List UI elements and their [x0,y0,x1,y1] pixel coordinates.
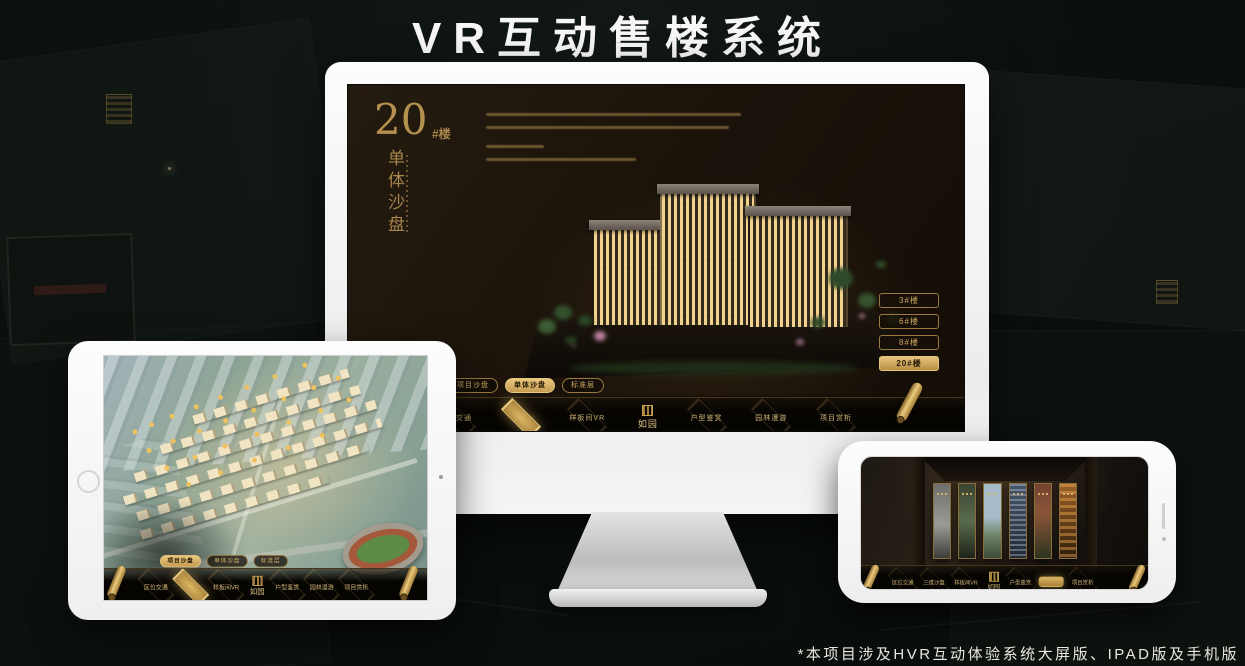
seal-icon [989,572,999,582]
gallery-panel[interactable] [1034,483,1052,559]
menu-item-project-review[interactable]: 项目赏析 [343,580,371,593]
intro-text-line [486,145,544,148]
menu-item-project-review[interactable]: 项目赏析 [816,410,856,426]
building-wing-right [748,215,848,327]
menu-item-unit-appreciation[interactable]: 户型鉴赏 [687,410,727,426]
scroll-brush-icon[interactable] [862,564,881,590]
tab-standard-floor[interactable]: 标准层 [562,378,604,393]
scroll-brush-icon[interactable] [398,565,419,600]
building-tower [660,193,756,325]
menu-item-unit-appreciation[interactable]: 户型鉴赏 [273,580,301,593]
menu-item-unit-appreciation[interactable]: 户型鉴赏 [1009,576,1032,588]
gallery-panel[interactable] [1059,483,1077,559]
building-number: 20 [374,99,427,141]
menu-item-showroom-vr[interactable]: 样板间VR [565,410,609,426]
tab-project-sandtable[interactable]: 项目沙盘 [160,555,201,567]
building-wing-left [592,229,668,325]
home-button[interactable] [77,470,100,493]
gallery-panel[interactable] [958,483,976,559]
section-subtitle-decor [406,155,408,235]
intro-text-line [486,113,741,116]
poster-canvas: VR互动售楼系统 20 #楼 单体沙盘 [0,0,1245,666]
menu-item-location-traffic[interactable]: 区位交通 [891,576,914,588]
speaker-icon [1162,503,1165,529]
menu-item-3d-sandtable[interactable]: 三维沙盘 [922,576,945,588]
menu-item-showroom-vr[interactable]: 样板间VR [953,576,979,588]
camera-icon [439,475,443,479]
phone-bottom-menu: 区位交通 三维沙盘 样板间VR 如园 户型鉴赏 园林漫游 项目赏析 [861,565,1148,590]
intro-text-line [486,126,729,129]
gallery-panel[interactable] [933,483,951,559]
floor-button-column: 3#楼 6#楼 8#楼 20#楼 [879,293,939,371]
seal-icon [642,405,653,416]
map-star-icon [168,167,171,170]
menu-item-garden-roam[interactable]: 园林漫游 [1040,576,1063,588]
model-trees-pink [594,331,606,341]
floor-button-3[interactable]: 3#楼 [879,293,939,308]
scroll-brush-icon[interactable] [1128,564,1147,590]
menu-item-garden-roam[interactable]: 园林漫游 [308,580,336,593]
menu-item-3d-sandtable[interactable]: 三维沙盘 [501,410,541,426]
background-photo-tile [972,70,1245,331]
tablet-device: 项目沙盘 单体沙盘 标准层 区位交通 三维沙盘 样板间VR 如园 户型鉴赏 园林… [68,341,456,620]
building-3d-model[interactable] [498,155,928,395]
gallery-panel[interactable] [1009,483,1027,559]
menu-item-project-review[interactable]: 项目赏析 [1071,576,1094,588]
building-badge-dots [132,429,138,435]
scroll-brush-icon[interactable] [106,565,127,600]
pavilion-beam [921,457,1089,481]
tab-single-sandtable[interactable]: 单体沙盘 [207,555,248,567]
model-hedge [568,361,858,375]
background-certificate [6,233,136,346]
map-marker-icon [1156,280,1178,304]
monitor-stand [557,512,758,592]
menu-item-location-traffic[interactable]: 区位交通 [142,580,170,593]
building-number-suffix: #楼 [432,125,451,142]
tablet-bottom-menu: 区位交通 三维沙盘 样板间VR 如园 户型鉴赏 园林漫游 项目赏析 [104,568,427,601]
gallery-panel[interactable] [983,483,1001,559]
smartphone-device: 区位交通 三维沙盘 样板间VR 如园 户型鉴赏 园林漫游 项目赏析 [838,441,1176,603]
tablet-view-tabs: 项目沙盘 单体沙盘 标准层 [160,555,288,567]
map-marker-icon [106,94,132,124]
tab-standard-floor[interactable]: 标准层 [253,555,287,567]
brand-logo-text: 如园 [250,587,265,597]
monitor-view-tabs: 项目沙盘 单体沙盘 标准层 [448,378,604,393]
tablet-screen: 项目沙盘 单体沙盘 标准层 区位交通 三维沙盘 样板间VR 如园 户型鉴赏 园林… [103,355,428,601]
floor-button-8[interactable]: 8#楼 [879,335,939,350]
brand-logo-text: 如园 [638,417,658,430]
brand-logo: 如园 [634,402,662,432]
floor-button-6[interactable]: 6#楼 [879,314,939,329]
brand-logo: 如园 [248,574,266,599]
menu-item-3d-sandtable[interactable]: 三维沙盘 [177,580,205,593]
menu-item-garden-roam[interactable]: 园林漫游 [751,410,791,426]
menu-items: 区位交通 三维沙盘 样板间VR 如园 户型鉴赏 园林漫游 项目赏析 [891,570,1094,590]
footnote-text: *本项目涉及HVR互动体验系统大屏版、IPAD版及手机版 [798,643,1239,664]
monitor-base [549,589,767,607]
seal-icon [252,576,262,586]
gallery-panels [933,483,1077,559]
camera-icon [1162,537,1166,541]
page-title: VR互动售楼系统 [0,2,1245,66]
menu-items: 区位交通 三维沙盘 样板间VR 如园 户型鉴赏 园林漫游 项目赏析 [142,574,370,599]
brand-logo: 如园 [987,570,1001,590]
model-trees-green [554,305,572,320]
menu-item-showroom-vr[interactable]: 样板间VR [211,580,241,593]
brand-logo-text: 如园 [987,583,1000,590]
floor-button-20-active[interactable]: 20#楼 [879,356,939,371]
phone-screen: 区位交通 三维沙盘 样板间VR 如园 户型鉴赏 园林漫游 项目赏析 [860,456,1149,590]
menu-items: 区位交通 三维沙盘 样板间VR 如园 户型鉴赏 园林漫游 项目赏析 [436,402,856,432]
section-title-vertical: 单体沙盘 [382,149,407,237]
tab-single-sandtable[interactable]: 单体沙盘 [505,378,555,393]
